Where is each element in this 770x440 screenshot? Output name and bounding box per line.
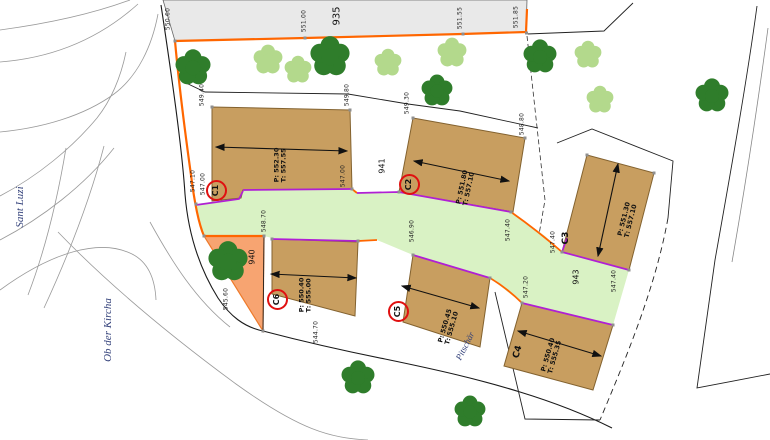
tree-dark xyxy=(342,360,375,393)
tree-light xyxy=(285,56,312,83)
site-plan: 550.60551.00551.55551.85549.40549.80549.… xyxy=(0,0,770,440)
building-id-text: C5 xyxy=(394,305,403,316)
tree-light xyxy=(254,45,283,74)
tree-dark xyxy=(524,39,557,72)
tree-dark xyxy=(310,36,349,75)
tree-light xyxy=(575,41,602,68)
building-id-text: C1 xyxy=(212,184,221,195)
parcel-935-strip xyxy=(163,0,527,41)
site-plan-drawing xyxy=(0,0,770,440)
circled-building-id-c1: C1 xyxy=(206,180,227,201)
circled-building-id-c2: C2 xyxy=(399,174,420,195)
tree-dark xyxy=(422,75,453,106)
tree-dark xyxy=(175,49,210,84)
tree-light xyxy=(438,38,467,67)
building-c1 xyxy=(212,107,352,201)
circled-building-id-c6: C6 xyxy=(267,289,288,310)
building-id-text: C6 xyxy=(273,293,282,304)
tree-light xyxy=(587,86,614,113)
tree-dark xyxy=(455,396,486,427)
circled-building-id-c5: C5 xyxy=(388,301,409,322)
tree-dark xyxy=(696,78,729,111)
building-id-text: C2 xyxy=(405,178,414,189)
tree-light xyxy=(375,49,402,76)
